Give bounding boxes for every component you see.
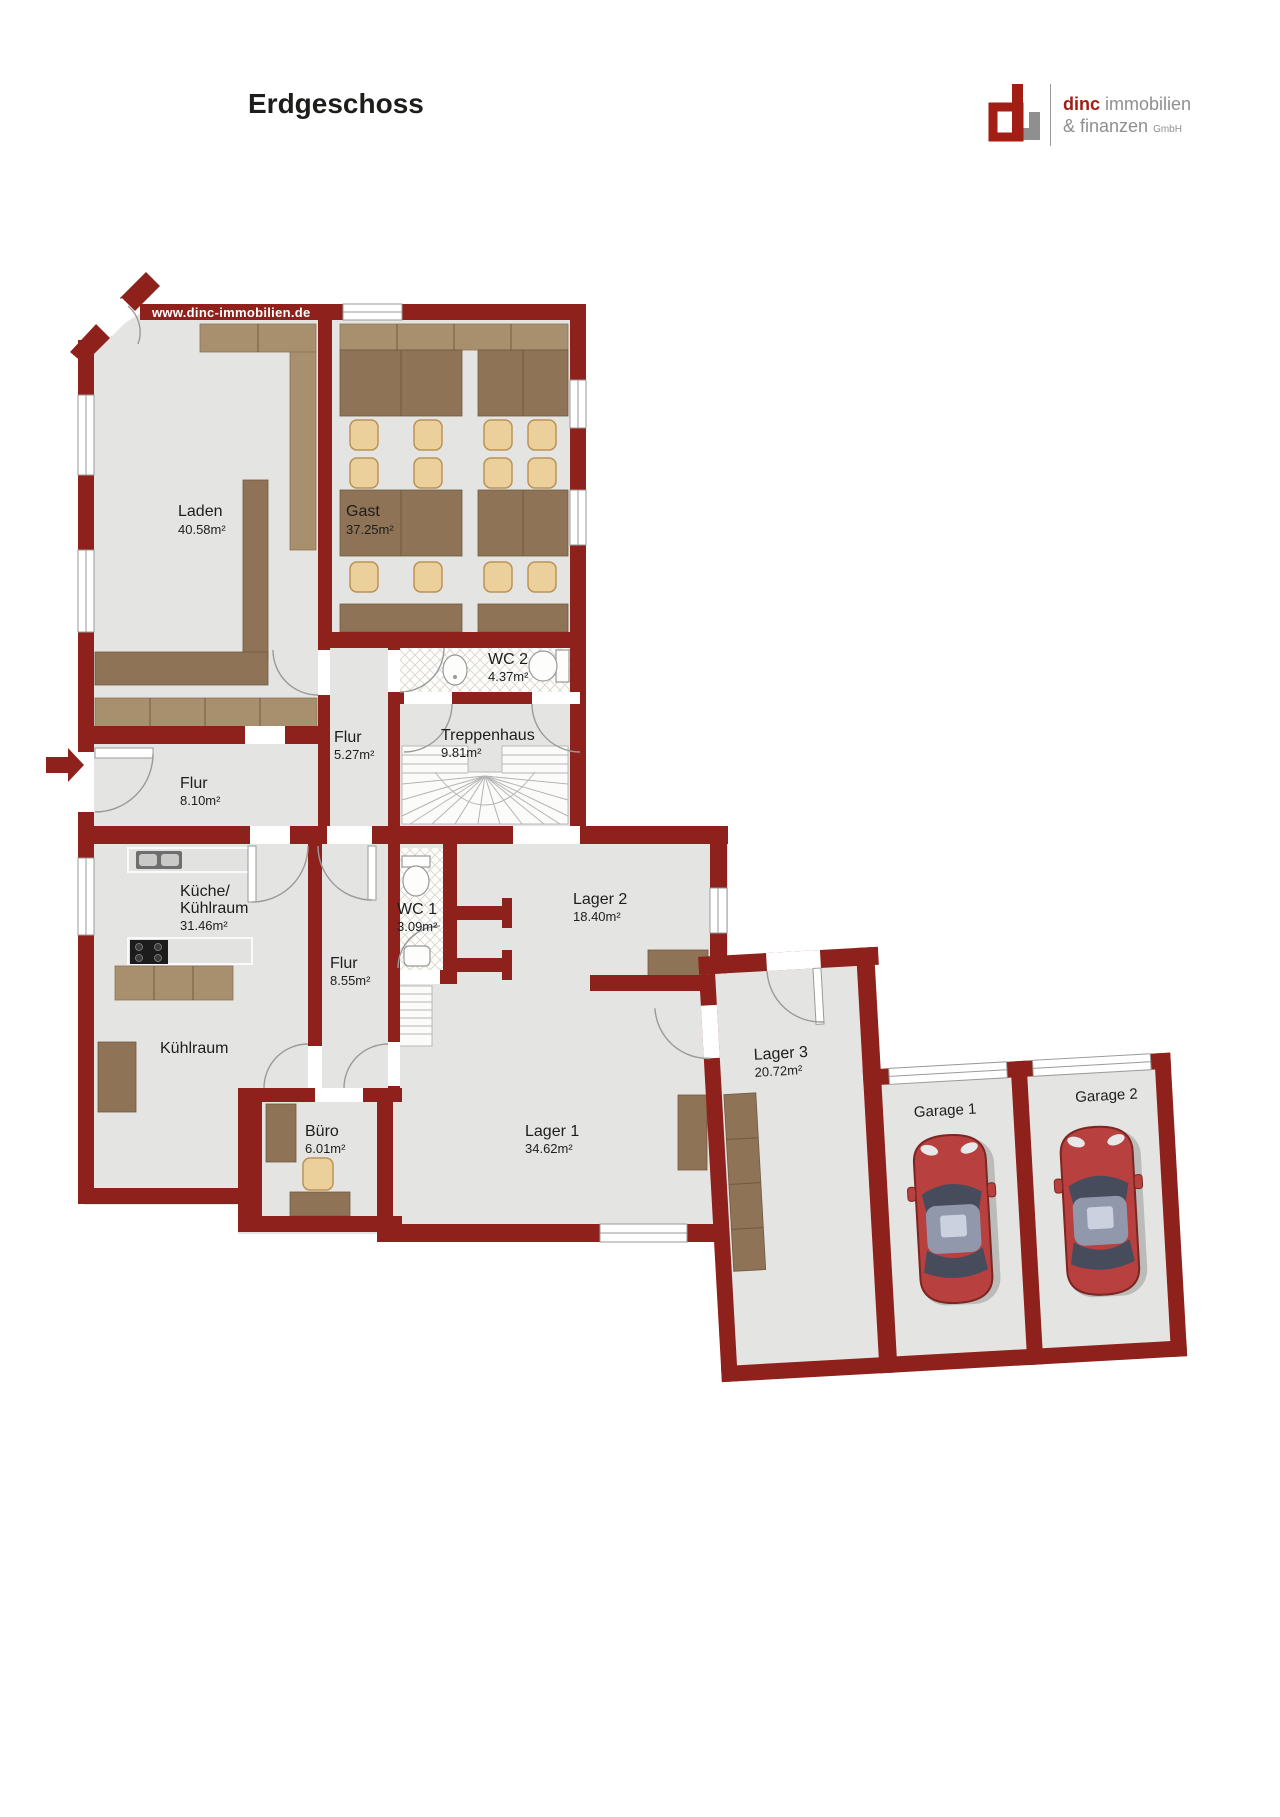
wall-stub-cap <box>502 950 512 980</box>
chair <box>528 562 556 592</box>
room-area-wc1: 3.09m² <box>397 919 438 934</box>
door-gap <box>315 1088 363 1102</box>
room-label-flur810: Flur <box>180 775 208 792</box>
room-label-lager3: Lager 3 <box>753 1044 808 1064</box>
door-gap <box>766 950 821 971</box>
wall-stub-cap <box>502 898 512 928</box>
page-title: Erdgeschoss <box>248 88 424 120</box>
chair <box>528 458 556 488</box>
room-area-lager3: 20.72m² <box>754 1062 803 1080</box>
laden-shelf-bottom <box>95 698 317 727</box>
room-area-flur527: 5.27m² <box>334 747 375 762</box>
logo-finanzen: & finanzen <box>1063 116 1148 136</box>
room-label-gast: Gast <box>346 503 380 520</box>
room-area-treppenhaus: 9.81m² <box>441 745 482 760</box>
logo-line2: & finanzen GmbH <box>1063 116 1191 137</box>
door-leaf <box>95 748 153 758</box>
company-logo: dinc immobilien & finanzen GmbH <box>986 82 1191 148</box>
wall-stub <box>457 958 508 972</box>
logo-divider <box>1050 84 1051 146</box>
door-gap <box>400 970 440 984</box>
chair <box>484 458 512 488</box>
wall-stub <box>457 906 508 920</box>
room-label-wc2: WC 2 <box>488 651 528 668</box>
wall-segment <box>238 1216 402 1232</box>
door-gap <box>245 726 285 744</box>
wall-segment <box>318 632 586 648</box>
door-leaf <box>248 846 256 902</box>
floor-plan: Lager 3 20.72m² Garage 1 Garage 2 www.di… <box>0 0 1280 1817</box>
door-gap <box>250 826 290 844</box>
logo-text: dinc immobilien & finanzen GmbH <box>1063 94 1191 137</box>
chair <box>350 458 378 488</box>
room-label-wc1: WC 1 <box>397 901 437 918</box>
door-gap <box>388 1042 400 1086</box>
laden-counter-l-horizontal <box>95 652 268 685</box>
room-area-gast: 37.25m² <box>346 522 394 537</box>
watermark-url: www.dinc-immobilien.de <box>151 305 311 320</box>
chair <box>350 420 378 450</box>
kuehlraum-cabinet <box>98 1042 136 1112</box>
room-label-garage1: Garage 1 <box>913 1101 976 1121</box>
room-label-treppenhaus: Treppenhaus <box>441 727 535 744</box>
sink <box>404 946 430 966</box>
door-leaf <box>368 846 376 900</box>
chair <box>414 562 442 592</box>
wall-segment <box>318 304 332 648</box>
room-label-kueche-1: Küche/ <box>180 883 230 900</box>
garage-wing: Lager 3 20.72m² Garage 1 Garage 2 <box>652 931 1187 1385</box>
entrance-door-gap <box>78 752 94 812</box>
chair <box>414 458 442 488</box>
door-gap <box>532 692 580 704</box>
toilet <box>529 651 557 681</box>
door-gap <box>513 826 580 844</box>
chair <box>484 562 512 592</box>
laden-counter-right <box>290 352 316 550</box>
chair <box>484 420 512 450</box>
room-area-flur810: 8.10m² <box>180 793 221 808</box>
room-label-laden: Laden <box>178 503 223 520</box>
room-area-lager2: 18.40m² <box>573 909 621 924</box>
logo-gmbh: GmbH <box>1153 124 1182 135</box>
logo-line1: dinc immobilien <box>1063 94 1191 115</box>
room-area-wc2: 4.37m² <box>488 669 529 684</box>
lager1-shelf <box>678 1095 707 1170</box>
buero-desk <box>290 1192 350 1216</box>
logo-brand-rest: immobilien <box>1105 94 1191 114</box>
chair <box>303 1158 333 1190</box>
page: Erdgeschoss dinc immobilien & finanzen G… <box>0 0 1280 1817</box>
toilet <box>403 866 429 896</box>
wall-segment <box>78 826 728 844</box>
room-area-laden: 40.58m² <box>178 522 226 537</box>
room-area-kueche: 31.46m² <box>180 918 228 933</box>
table <box>340 604 462 632</box>
room-label-garage2: Garage 2 <box>1075 1086 1138 1106</box>
room-label-flur527: Flur <box>334 729 362 746</box>
room-label-flur855: Flur <box>330 955 358 972</box>
room-label-lager1: Lager 1 <box>525 1123 579 1140</box>
laden-counter-l-vertical <box>243 480 268 658</box>
door-gap <box>404 692 452 704</box>
door-gap <box>701 1005 720 1059</box>
table <box>478 604 568 632</box>
cellar-stairs <box>396 986 432 1046</box>
toilet-tank <box>402 856 430 867</box>
stove <box>130 940 168 964</box>
door-gap <box>388 650 400 692</box>
wall-segment <box>443 844 457 984</box>
room-label-buero: Büro <box>305 1123 339 1140</box>
kitchen-wood-counter <box>115 966 233 1000</box>
buero-cabinet <box>266 1104 296 1162</box>
room-label-kuehlraum: Kühlraum <box>160 1040 228 1057</box>
door-gap <box>318 650 330 695</box>
wall-segment <box>78 1188 262 1204</box>
chair <box>528 420 556 450</box>
room-area-buero: 6.01m² <box>305 1141 346 1156</box>
chair <box>350 562 378 592</box>
wall-segment <box>402 304 586 320</box>
door-gap <box>327 826 372 844</box>
door-gap <box>308 1046 322 1088</box>
logo-mark-icon <box>986 82 1040 148</box>
room-label-lager2: Lager 2 <box>573 891 627 908</box>
logo-brand: dinc <box>1063 94 1100 114</box>
sink <box>443 655 467 685</box>
room-area-flur855: 8.55m² <box>330 973 371 988</box>
room-label-kueche-2: Kühlraum <box>180 900 248 917</box>
chair <box>414 420 442 450</box>
toilet-tank <box>556 650 569 682</box>
room-area-lager1: 34.62m² <box>525 1141 573 1156</box>
